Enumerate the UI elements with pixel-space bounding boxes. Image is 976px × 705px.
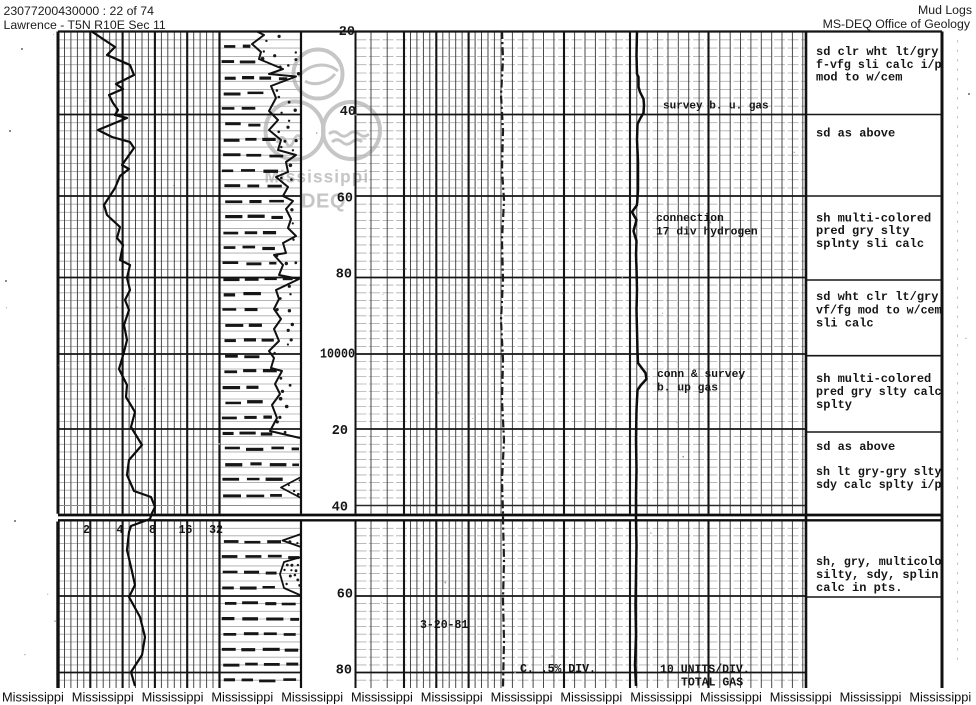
svg-text:32: 32: [209, 524, 223, 537]
svg-text:16: 16: [179, 524, 193, 537]
svg-text:TOTAL GAS: TOTAL GAS: [681, 677, 743, 690]
svg-text:8: 8: [149, 524, 156, 537]
svg-text:survey b. u. gas: survey b. u. gas: [663, 101, 769, 113]
svg-text:60: 60: [337, 588, 353, 603]
svg-text:40: 40: [332, 501, 348, 516]
svg-text:sh, gry, multicolo: sh, gry, multicolo: [816, 555, 942, 569]
svg-text:sd as above: sd as above: [816, 440, 895, 454]
svg-text:sh multi-colored: sh multi-colored: [816, 372, 931, 386]
svg-text:Mississippi: Mississippi: [491, 690, 553, 705]
svg-text:20: 20: [332, 424, 348, 439]
svg-text:pred gry slty calc: pred gry slty calc: [816, 385, 942, 399]
svg-text:Mississippi: Mississippi: [700, 690, 762, 705]
svg-text:sd clr wht lt/gry: sd clr wht lt/gry: [816, 45, 938, 59]
svg-text:Mississippi: Mississippi: [211, 690, 273, 705]
svg-text:17 div hydrogen: 17 div hydrogen: [656, 227, 758, 239]
svg-text:Mississippi: Mississippi: [72, 690, 134, 705]
svg-text:80: 80: [336, 268, 352, 283]
svg-text:Mississippi: Mississippi: [265, 167, 370, 187]
svg-text:Mississippi: Mississippi: [142, 690, 204, 705]
svg-text:sd wht clr lt/gry: sd wht clr lt/gry: [816, 290, 938, 304]
svg-text:Mississippi: Mississippi: [630, 690, 692, 705]
svg-text:Mississippi: Mississippi: [560, 690, 622, 705]
svg-text:20: 20: [339, 25, 355, 40]
svg-text:mod to w/cem: mod to w/cem: [816, 71, 902, 85]
svg-text:10000: 10000: [320, 348, 355, 363]
svg-text:60: 60: [337, 192, 353, 207]
svg-text:Mississippi: Mississippi: [351, 690, 413, 705]
svg-text:vf/fg mod to w/cem: vf/fg mod to w/cem: [816, 304, 942, 318]
svg-text:calc in pts.: calc in pts.: [816, 581, 902, 595]
svg-text:2: 2: [83, 524, 90, 537]
svg-text:80: 80: [336, 664, 352, 679]
svg-text:connection: connection: [656, 213, 724, 225]
svg-text:pred gry slty: pred gry slty: [816, 224, 910, 238]
svg-text:40: 40: [340, 105, 356, 120]
svg-text:sdy calc splty i/p: sdy calc splty i/p: [816, 478, 942, 492]
svg-text:splnty sli calc: splnty sli calc: [816, 237, 924, 251]
svg-text:Mississippi: Mississippi: [840, 690, 902, 705]
svg-text:3-20-81: 3-20-81: [420, 619, 468, 632]
svg-text:10 UNITS/DIV.: 10 UNITS/DIV.: [660, 664, 750, 677]
svg-text:sli calc: sli calc: [816, 317, 874, 331]
svg-text:Mississippi: Mississippi: [2, 690, 64, 705]
svg-text:Mississippi: Mississippi: [281, 690, 343, 705]
svg-text:sh lt gry-gry slty: sh lt gry-gry slty: [816, 465, 942, 479]
svg-text:Mississippi: Mississippi: [909, 690, 971, 705]
svg-text:4: 4: [117, 524, 124, 537]
svg-text:C. .5% DIV.: C. .5% DIV.: [520, 663, 596, 676]
svg-text:Mississippi: Mississippi: [421, 690, 483, 705]
svg-text:splty: splty: [816, 398, 852, 412]
svg-text:conn & survey: conn & survey: [657, 369, 745, 381]
svg-text:b. up gas: b. up gas: [657, 383, 718, 395]
svg-text:silty, sdy, splin: silty, sdy, splin: [816, 568, 938, 582]
svg-text:Mississippi: Mississippi: [770, 690, 832, 705]
svg-text:sd as above: sd as above: [816, 127, 895, 141]
